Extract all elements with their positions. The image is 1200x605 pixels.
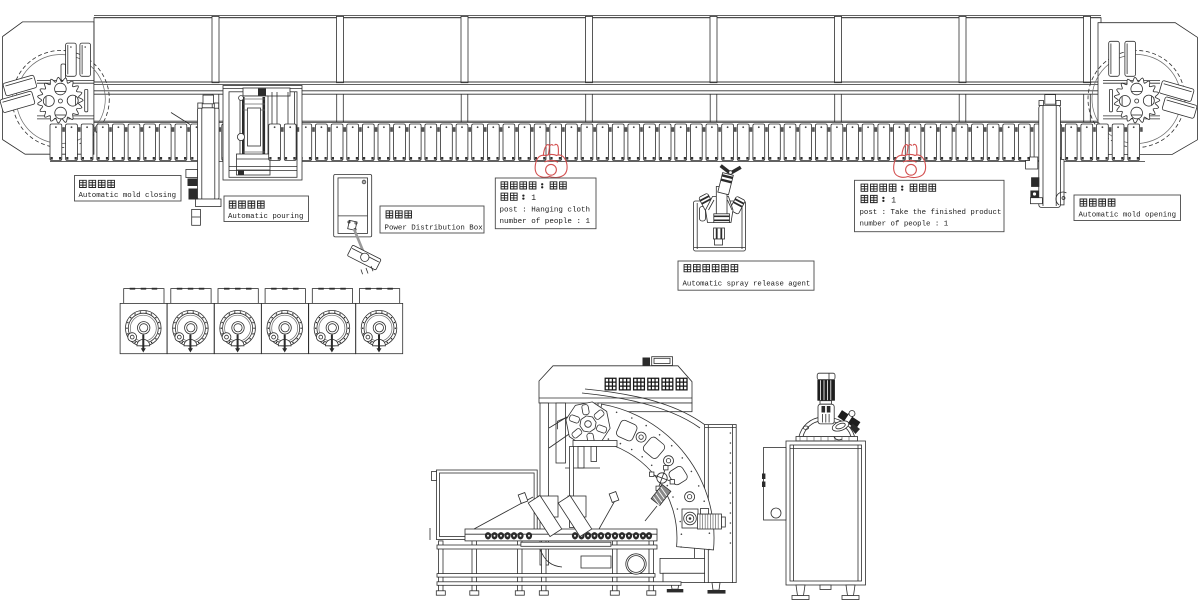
svg-text:1: 1	[531, 194, 536, 203]
svg-text:post : Take the finished produ: post : Take the finished product	[860, 209, 1002, 217]
svg-text:Automatic mold closing: Automatic mold closing	[79, 192, 177, 200]
svg-text:Power Distribution Box: Power Distribution Box	[385, 224, 484, 232]
svg-text:number of people : 1: number of people : 1	[860, 220, 949, 228]
svg-text:Automatic pouring: Automatic pouring	[228, 213, 303, 221]
svg-text:Automatic mold opening: Automatic mold opening	[1079, 211, 1177, 219]
svg-text:number of people : 1: number of people : 1	[500, 218, 591, 226]
svg-text:post : Hanging cloth: post : Hanging cloth	[500, 207, 591, 215]
svg-text:Automatic spray release agent: Automatic spray release agent	[683, 280, 811, 288]
svg-text:1: 1	[891, 196, 896, 205]
